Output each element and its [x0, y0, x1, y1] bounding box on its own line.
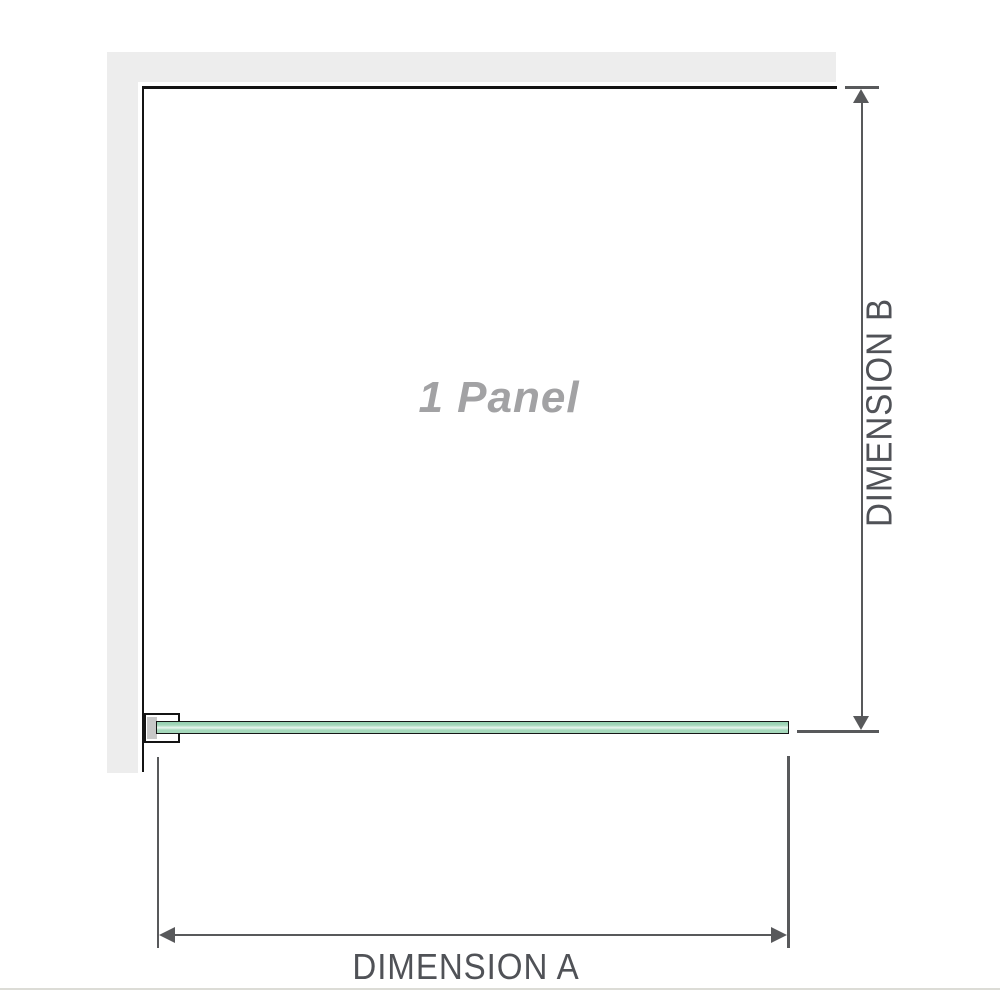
wall-left-bar: [107, 52, 138, 773]
glass-panel: [156, 721, 789, 735]
dimension-b-label: DIMENSION B: [861, 275, 898, 551]
arrow-right-icon: [771, 927, 787, 943]
diagram-canvas: 1 Panel DIMENSION B DIMENSION A: [0, 0, 1000, 1000]
image-bottom-edge: [0, 988, 1000, 990]
wall-top-bar: [107, 52, 836, 82]
dimension-a-label: DIMENSION A: [328, 948, 604, 985]
dimension-a-line: [172, 934, 774, 937]
bracket-wall-pad: [147, 717, 157, 739]
dimension-a-left-extension: [157, 757, 160, 948]
panel-top-border: [143, 86, 837, 89]
arrow-down-icon: [853, 716, 869, 730]
arrow-up-icon: [853, 89, 869, 103]
panel-left-border: [142, 86, 145, 772]
dimension-a-right-extension: [787, 756, 790, 948]
arrow-left-icon: [159, 927, 175, 943]
panel-label: 1 Panel: [349, 370, 649, 426]
dimension-b-bottom-tick: [797, 730, 879, 733]
